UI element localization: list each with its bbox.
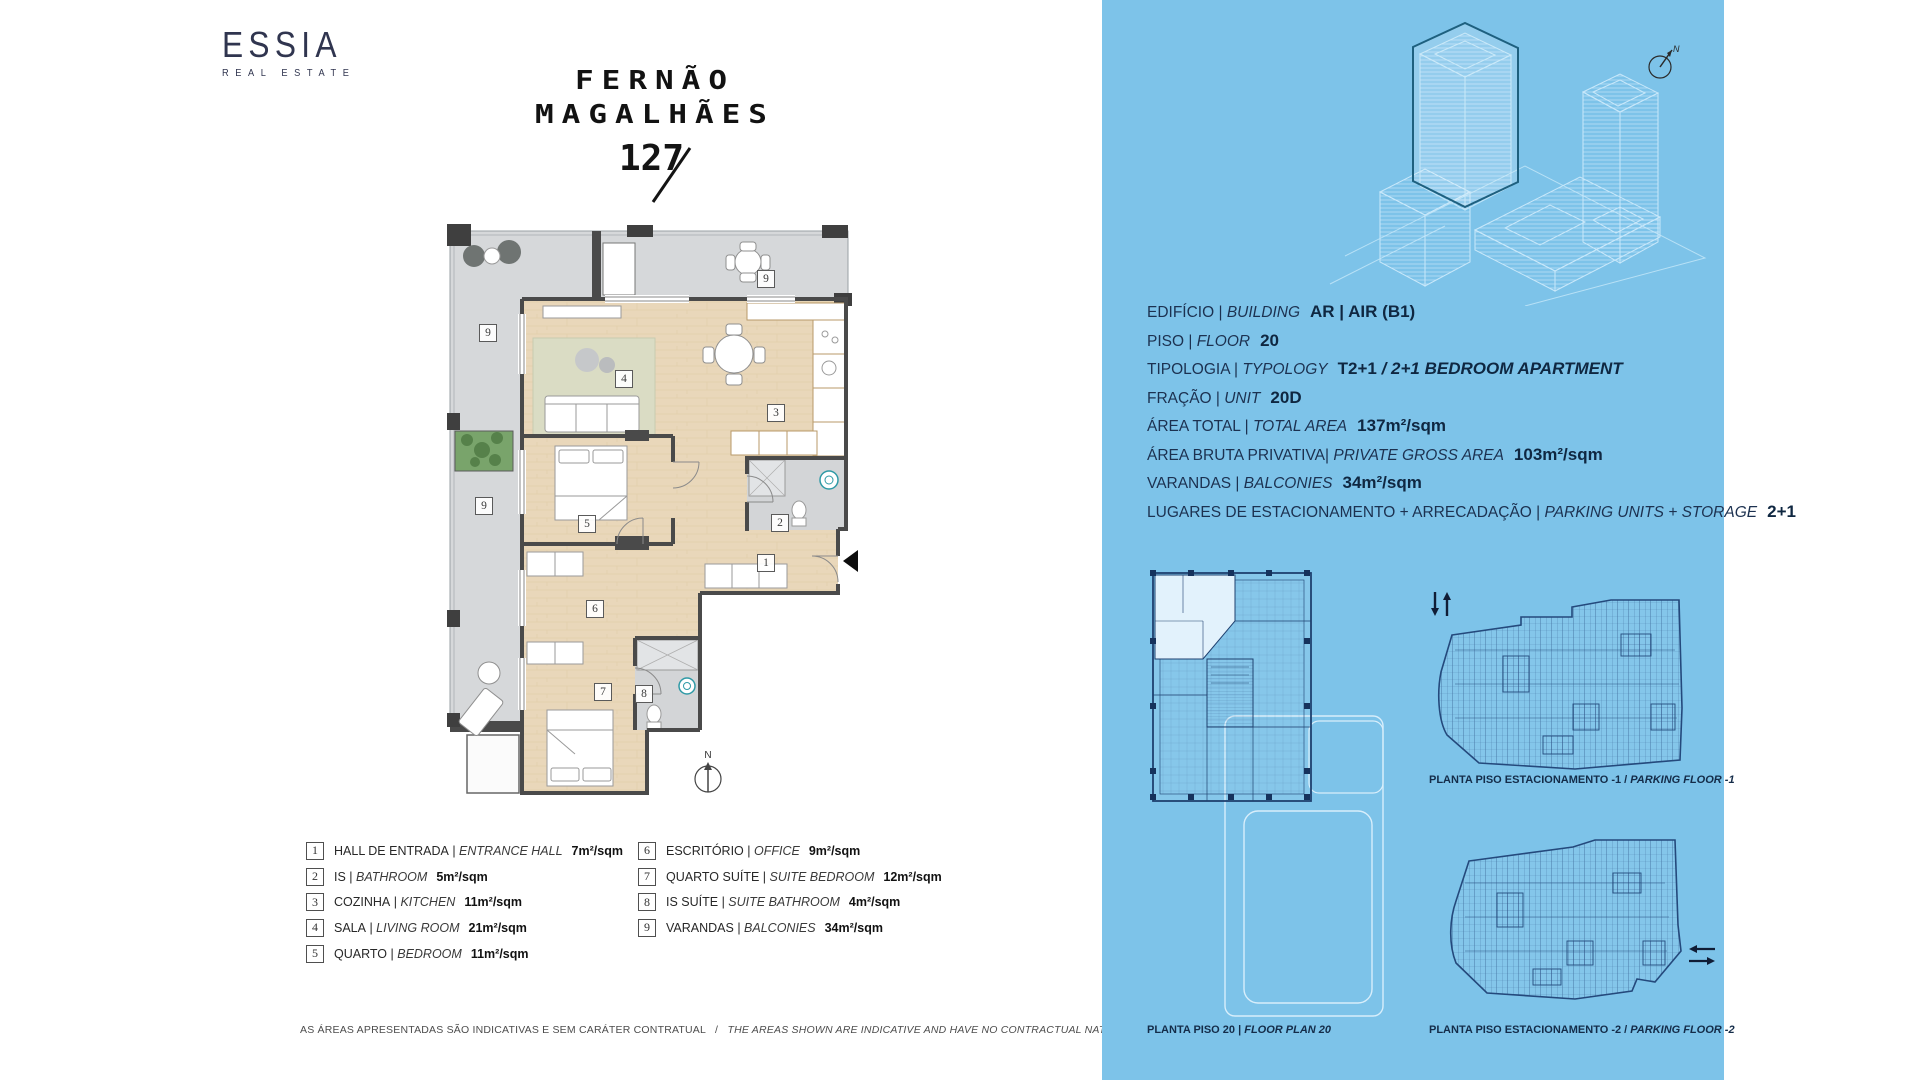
room-tag-2: 2	[771, 514, 789, 532]
spec-line: TIPOLOGIA | TYPOLOGYT2+1 / 2+1 BEDROOM A…	[1147, 359, 1796, 388]
floor20-label: PLANTA PISO 20 | FLOOR PLAN 20	[1147, 1024, 1331, 1036]
essia-wordmark: ESSIA	[222, 26, 356, 64]
legend-item: 8IS SUÍTE | SUITE BATHROOM4m²/sqm	[638, 889, 970, 915]
legend-item: 1HALL DE ENTRADA | ENTRANCE HALL7m²/sqm	[306, 838, 638, 864]
spec-line: FRAÇÃO | UNIT20D	[1147, 388, 1796, 417]
disclaimer-pt: AS ÁREAS APRESENTADAS SÃO INDICATIVAS E …	[300, 1024, 706, 1036]
tv-bench	[543, 306, 621, 318]
lower-balcony-box	[467, 735, 519, 793]
essia-subtitle: REAL ESTATE	[222, 67, 356, 79]
legend-item: 5QUARTO | BEDROOM11m²/sqm	[306, 941, 638, 967]
disclaimer: AS ÁREAS APRESENTADAS SÃO INDICATIVAS E …	[300, 1024, 1012, 1036]
svg-text:N: N	[704, 750, 711, 761]
legend-item: 2IS | BATHROOM5m²/sqm	[306, 864, 638, 890]
suite-closet	[527, 642, 583, 664]
room-tag-8: 8	[635, 685, 653, 703]
svg-text:N: N	[1673, 44, 1680, 54]
disclaimer-en: THE AREAS SHOWN ARE INDICATIVE AND HAVE …	[727, 1024, 1128, 1036]
info-panel: N EDIFÍCIO | BUILDINGAR | AIR (B1)PISO |…	[1102, 0, 1724, 1080]
bed-bedroom	[555, 446, 627, 520]
spec-line: LUGARES DE ESTACIONAMENTO + ARRECADAÇÃO …	[1147, 502, 1796, 531]
north-arrow-icon: N	[695, 750, 721, 792]
spec-line: PISO | FLOOR20	[1147, 331, 1796, 360]
room-tag-9: 9	[757, 270, 775, 288]
parking2-label: PLANTA PISO ESTACIONAMENTO -2 / PARKING …	[1429, 1024, 1735, 1036]
legend-item: 6ESCRITÓRIO | OFFICE9m²/sqm	[638, 838, 970, 864]
legend-item: 3COZINHA | KITCHEN11m²/sqm	[306, 889, 638, 915]
legend-item: 4SALA | LIVING ROOM21m²/sqm	[306, 915, 638, 941]
project-logo: FERNÃO MAGALHÃES	[520, 64, 790, 132]
legend-item: 9VARANDAS | BALCONIES34m²/sqm	[638, 915, 970, 941]
spec-line: EDIFÍCIO | BUILDINGAR | AIR (B1)	[1147, 302, 1796, 331]
unit-specs: EDIFÍCIO | BUILDINGAR | AIR (B1)PISO | F…	[1147, 302, 1796, 530]
spec-line: ÁREA BRUTA PRIVATIVA| PRIVATE GROSS AREA…	[1147, 445, 1796, 474]
direction-arrows-icon	[1689, 945, 1715, 965]
floorplan-drawing: N	[447, 218, 862, 803]
entrance-marker-icon	[843, 550, 858, 572]
room-tag-5: 5	[578, 515, 596, 533]
spec-line: VARANDAS | BALCONIES34m²/sqm	[1147, 473, 1796, 502]
coffee-table	[575, 348, 599, 372]
floor20-thumbnail	[1143, 563, 1393, 1018]
compass-icon: N	[1640, 40, 1684, 84]
sofa	[545, 396, 639, 432]
room-tag-6: 6	[586, 600, 604, 618]
legend-item: 7QUARTO SUÍTE | SUITE BEDROOM12m²/sqm	[638, 864, 970, 890]
window-bay	[603, 243, 635, 295]
office-closet	[527, 552, 583, 576]
room-legend: 1HALL DE ENTRADA | ENTRANCE HALL7m²/sqm2…	[306, 838, 970, 966]
project-number-127: 127	[617, 132, 709, 206]
brochure-page: ESSIA REAL ESTATE FERNÃO MAGALHÃES 127	[0, 0, 1920, 1080]
room-tag-4: 4	[615, 370, 633, 388]
bed-suite	[547, 710, 613, 786]
room-tag-3: 3	[767, 404, 785, 422]
room-tag-9: 9	[479, 324, 497, 342]
apartment-floorplan: N 12345678999	[447, 218, 862, 803]
project-name-line1: FERNÃO	[520, 67, 790, 95]
room-tag-7: 7	[594, 683, 612, 701]
elevator-arrows-icon	[1431, 592, 1451, 616]
room-tag-9: 9	[475, 497, 493, 515]
tower-selection-outline	[1413, 23, 1518, 207]
parking-floor2-thumbnail	[1425, 833, 1725, 1023]
room-tag-1: 1	[757, 554, 775, 572]
spec-line: ÁREA TOTAL | TOTAL AREA137m²/sqm	[1147, 416, 1796, 445]
essia-logo: ESSIA REAL ESTATE	[222, 26, 356, 79]
project-name-line2: MAGALHÃES	[520, 101, 790, 129]
parking1-label: PLANTA PISO ESTACIONAMENTO -1 / PARKING …	[1429, 774, 1735, 786]
parking-floor1-thumbnail	[1425, 588, 1725, 778]
